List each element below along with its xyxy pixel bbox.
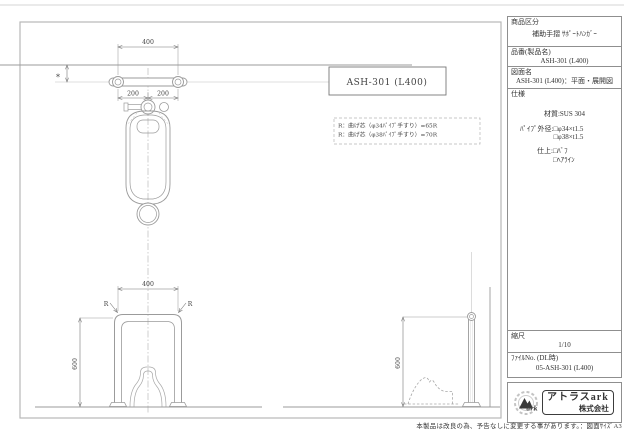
spec-finish-option: □ﾍｱﾗｲﾝ bbox=[553, 156, 575, 165]
floor-flange-left bbox=[110, 403, 127, 407]
flange-right-outer bbox=[173, 77, 184, 88]
spec-finish-label: 仕上: bbox=[537, 147, 553, 165]
logo-ark-text: ark bbox=[526, 405, 537, 412]
spec-material: 材質:SUS 304 bbox=[508, 110, 621, 119]
titleblock-product-number: 品番(製品名) ASH-301 (L400) bbox=[507, 46, 622, 67]
spec-pipe-label: ﾊﾟｲﾌﾟ外径: bbox=[520, 125, 553, 143]
note-line: R：曲げ芯（φ38ﾊﾟｲﾌﾟ手すり）=70R bbox=[338, 131, 438, 139]
titleblock-specs: 仕様 材質:SUS 304 ﾊﾟｲﾌﾟ外径: □φ34×t1.5 □φ38×t1… bbox=[507, 88, 622, 331]
part-label-box: ASH-301 (L400) bbox=[329, 67, 446, 95]
part-label: ASH-301 (L400) bbox=[346, 77, 428, 88]
field-value: ASH-301 (L400)：平面・展開図 bbox=[508, 77, 621, 86]
dim-front-600: 600 bbox=[72, 318, 113, 407]
spec-pipe-diameter: ﾊﾟｲﾌﾟ外径: □φ34×t1.5 □φ38×t1.5 bbox=[520, 125, 621, 143]
titleblock-product-category: 商品区分 補助手摺 ｻﾎﾟｰﾄﾊﾝｶﾞｰ bbox=[507, 16, 622, 47]
radius-label: R bbox=[188, 301, 193, 308]
spec-pipe-option: □φ34×t1.5 bbox=[553, 125, 583, 134]
note-line: R：曲げ芯（φ34ﾊﾟｲﾌﾟ手すり）=65R bbox=[338, 122, 438, 130]
company-name: アトラスark bbox=[547, 392, 609, 405]
urinal-plan bbox=[124, 100, 170, 225]
field-label: ﾌｧｲﾙNo. (DL時) bbox=[508, 353, 621, 363]
disclaimer-note: 本製品は改良の為、予告なしに変更する事があります。：図面ｻｲｽﾞA3 bbox=[0, 421, 622, 430]
dim-text: * bbox=[56, 73, 60, 82]
field-value: 1/10 bbox=[508, 341, 621, 350]
dim-wall-offset: * bbox=[56, 65, 67, 82]
spec-pipe-option: □φ38×t1.5 bbox=[553, 133, 583, 142]
titleblock-company: ark アトラスark 株式会社 bbox=[507, 382, 622, 423]
side-view: 600 bbox=[283, 252, 500, 407]
field-label: 仕様 bbox=[508, 89, 621, 99]
radius-label: R bbox=[104, 301, 109, 308]
dim-text: 400 bbox=[142, 39, 154, 46]
dim-text: 600 bbox=[72, 358, 79, 370]
field-value: 05-ASH-301 (L400) bbox=[508, 364, 621, 373]
bend-radius-note: R：曲げ芯（φ34ﾊﾟｲﾌﾟ手すり）=65R R：曲げ芯（φ38ﾊﾟｲﾌﾟ手すり… bbox=[334, 118, 480, 144]
post-cap bbox=[468, 313, 476, 321]
titleblock-drawing-name: 図面名 ASH-301 (L400)：平面・展開図 bbox=[507, 66, 622, 89]
dim-text: 200 bbox=[127, 91, 139, 98]
company-gear-logo: ark bbox=[511, 388, 541, 418]
front-view: R R 400 600 bbox=[35, 281, 262, 407]
field-value: 補助手摺 ｻﾎﾟｰﾄﾊﾝｶﾞｰ bbox=[508, 30, 621, 39]
field-label: 縮尺 bbox=[508, 331, 621, 341]
drawing-sheet: 400 200 200 * bbox=[0, 0, 624, 442]
titleblock-file-no: ﾌｧｲﾙNo. (DL時) 05-ASH-301 (L400) bbox=[507, 352, 622, 378]
spec-finish: 仕上: □ﾊﾞﾌ □ﾍｱﾗｲﾝ bbox=[537, 147, 621, 165]
floor-flange-side bbox=[463, 403, 481, 407]
field-label: 図面名 bbox=[508, 67, 621, 77]
company-name-box: アトラスark 株式会社 bbox=[542, 390, 614, 416]
field-value: ASH-301 (L400) bbox=[508, 57, 621, 66]
dim-text: 600 bbox=[395, 357, 402, 369]
floor-flange-right bbox=[170, 403, 187, 407]
field-label: 品番(製品名) bbox=[508, 47, 621, 57]
flange-left-outer bbox=[113, 77, 124, 88]
field-label: 商品区分 bbox=[508, 17, 621, 27]
company-suffix: 株式会社 bbox=[547, 404, 609, 413]
spec-finish-option: □ﾊﾞﾌ bbox=[553, 147, 575, 156]
urinal-side-profile bbox=[404, 378, 459, 404]
titleblock-scale: 縮尺 1/10 bbox=[507, 330, 622, 353]
dim-text: 200 bbox=[157, 91, 169, 98]
dim-side-600: 600 bbox=[395, 317, 467, 407]
dim-text: 400 bbox=[142, 281, 154, 288]
